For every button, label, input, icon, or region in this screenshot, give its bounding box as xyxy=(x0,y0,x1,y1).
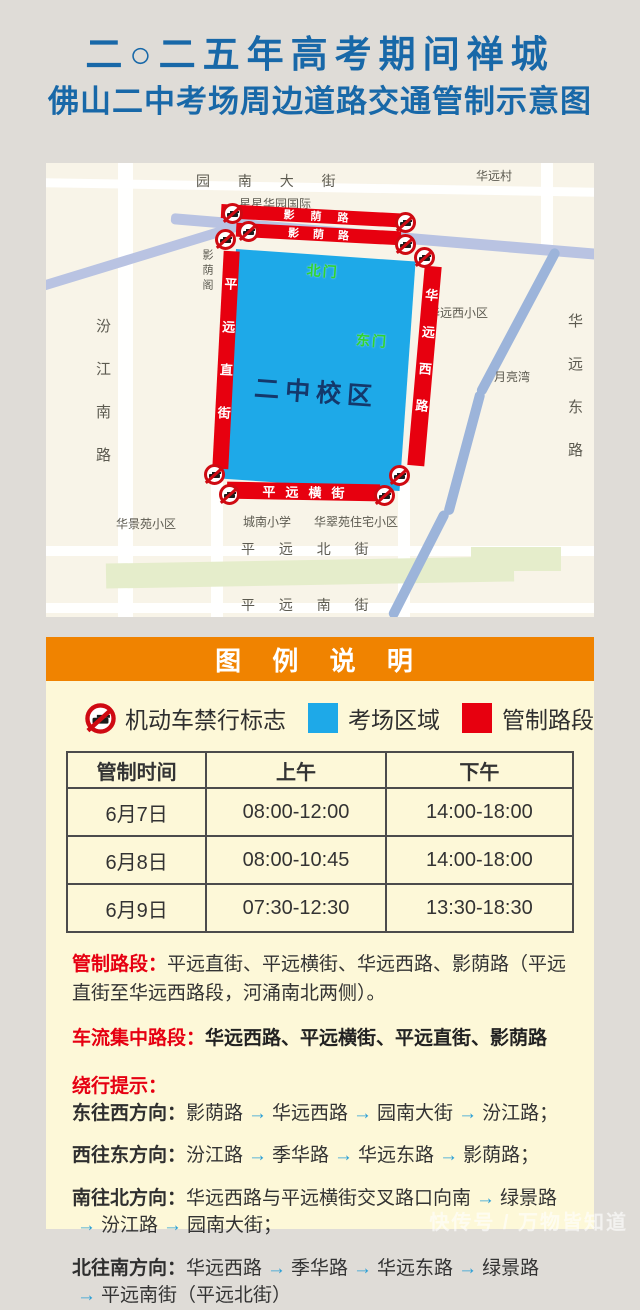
legend-panel: 图 例 说 明 机动车禁行标志 考场区域 管制路段 管制时间 上午 下午 6月7… xyxy=(46,637,594,1229)
green-area xyxy=(106,556,514,588)
afternoon-cell: 14:00-18:00 xyxy=(386,788,573,836)
col-header-afternoon: 下午 xyxy=(386,752,573,788)
controlled-roads-label: 管制路段： xyxy=(72,954,167,975)
title-line-1: 二○二五年高考期间禅城 xyxy=(0,30,640,80)
map-label-yingyin-pavilion: 影荫阁 xyxy=(199,249,215,294)
detour-route-west-to-east: 西往东方向：汾江路→季华路→华远东路→影荫路； xyxy=(72,1142,568,1170)
busy-roads-text: 华远西路、平远横街、平远直街、影荫路 xyxy=(205,1028,547,1049)
notice-text: 管制路段：平远直街、平远横街、华远西路、影荫路（平远直街至华远西路段，河涌南北两… xyxy=(46,933,594,1310)
legend-label-restricted: 管制路段 xyxy=(502,701,594,735)
map-label-moon-bay: 月亮湾 xyxy=(494,368,530,385)
busy-roads-paragraph: 车流集中路段：华远西路、平远横街、平远直街、影荫路 xyxy=(72,1026,568,1053)
no-entry-icon xyxy=(204,464,225,485)
date-cell: 6月7日 xyxy=(67,788,206,836)
map-label-huayuan-village: 华远村 xyxy=(476,167,512,184)
watermark: 快传号 / 万物皆知道 xyxy=(429,1206,628,1235)
map-label-pingyuan-south-street: 平 远 南 街 xyxy=(241,595,379,615)
north-gate-label: 北门 xyxy=(306,260,339,282)
traffic-map: 北门 东门 二中校区 影荫路 影荫路 平远直街 华远西路 平远横街 园 南 大 … xyxy=(46,163,594,617)
map-label-pingyuan-north-street: 平 远 北 街 xyxy=(241,539,379,559)
legend-header: 图 例 说 明 xyxy=(46,637,594,681)
no-entry-icon xyxy=(219,484,240,505)
no-entry-icon xyxy=(85,703,115,733)
page-title: 二○二五年高考期间禅城 佛山二中考场周边道路交通管制示意图 xyxy=(0,30,640,125)
no-entry-icon xyxy=(215,229,236,250)
no-entry-icon xyxy=(238,221,259,242)
road-line xyxy=(541,163,553,248)
morning-cell: 08:00-12:00 xyxy=(206,788,385,836)
col-header-time: 管制时间 xyxy=(67,752,206,788)
map-label-yuannan-street: 园 南 大 街 xyxy=(196,171,348,191)
table-row: 6月9日 07:30-12:30 13:30-18:30 xyxy=(67,884,573,932)
legend-label-no-entry: 机动车禁行标志 xyxy=(125,701,286,735)
map-label-chengnan-school: 城南小学 xyxy=(243,513,291,530)
detour-route-north-to-south: 北往南方向：华远西路→季华路→华远东路→绿景路→平远南街（平远北街） xyxy=(72,1255,568,1310)
legend-label-exam-area: 考场区域 xyxy=(348,701,440,735)
restricted-road-swatch xyxy=(462,703,492,733)
controlled-roads-paragraph: 管制路段：平远直街、平远横街、华远西路、影荫路（平远直街至华远西路段，河涌南北两… xyxy=(72,951,568,1008)
no-entry-icon xyxy=(395,212,416,233)
morning-cell: 08:00-10:45 xyxy=(206,836,385,884)
morning-cell: 07:30-12:30 xyxy=(206,884,385,932)
campus-label: 二中校区 xyxy=(225,367,407,415)
east-gate-label: 东门 xyxy=(355,330,388,352)
table-row: 6月7日 08:00-12:00 14:00-18:00 xyxy=(67,788,573,836)
busy-roads-label: 车流集中路段： xyxy=(72,1028,205,1049)
col-header-morning: 上午 xyxy=(206,752,385,788)
date-cell: 6月9日 xyxy=(67,884,206,932)
map-label-fenjiang-south-road: 汾江南路 xyxy=(92,318,113,490)
exam-area-swatch xyxy=(308,703,338,733)
no-entry-icon xyxy=(374,485,395,506)
green-area xyxy=(471,547,561,571)
detour-title: 绕行提示： xyxy=(72,1071,568,1098)
exam-area: 北门 东门 二中校区 xyxy=(220,249,416,491)
no-entry-icon xyxy=(414,247,435,268)
map-label-huajing-estate: 华景苑小区 xyxy=(116,515,176,532)
no-entry-icon xyxy=(389,465,410,486)
table-header-row: 管制时间 上午 下午 xyxy=(67,752,573,788)
detour-route-east-to-west: 东往西方向：影荫路→华远西路→园南大街→汾江路； xyxy=(72,1100,568,1128)
map-label-huacui-estate: 华翠苑住宅小区 xyxy=(314,513,398,530)
traffic-control-notice: 二○二五年高考期间禅城 佛山二中考场周边道路交通管制示意图 北门 东门 二中校区… xyxy=(0,0,640,1243)
date-cell: 6月8日 xyxy=(67,836,206,884)
legend-items: 机动车禁行标志 考场区域 管制路段 xyxy=(46,681,594,735)
table-row: 6月8日 08:00-10:45 14:00-18:00 xyxy=(67,836,573,884)
control-times-table: 管制时间 上午 下午 6月7日 08:00-12:00 14:00-18:00 … xyxy=(66,751,574,933)
map-label-huayuan-east-road: 华远东路 xyxy=(564,313,585,485)
no-entry-icon xyxy=(395,234,416,255)
afternoon-cell: 13:30-18:30 xyxy=(386,884,573,932)
controlled-road-pingyuan-heng: 平远横街 xyxy=(227,482,380,502)
title-line-2: 佛山二中考场周边道路交通管制示意图 xyxy=(0,80,640,125)
no-entry-icon xyxy=(222,203,243,224)
afternoon-cell: 14:00-18:00 xyxy=(386,836,573,884)
river xyxy=(443,390,486,516)
